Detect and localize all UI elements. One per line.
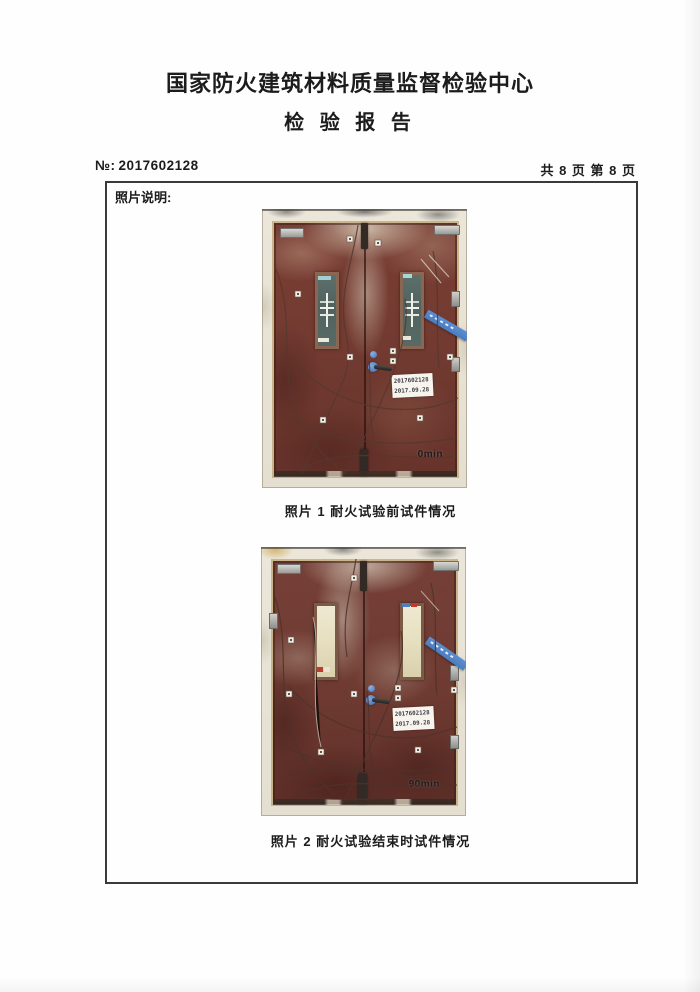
report-number: №:2017602128 — [95, 158, 199, 173]
section-label: 照片说明: — [115, 187, 171, 206]
photo-1-caption: 照片 1 耐火试验前试件情况 — [105, 501, 636, 520]
page-info: 共 8 页 第 8 页 — [540, 160, 636, 179]
report-number-label: №: — [95, 158, 116, 173]
photo-before-test: 2017602128 2017.09.28 0min — [262, 209, 467, 488]
organization-title: 国家防火建筑材料质量监督检验中心 — [0, 66, 700, 98]
report-page: 国家防火建筑材料质量监督检验中心 检 验 报 告 №:2017602128 共 … — [0, 0, 700, 992]
thermocouple-wires-and-markers — [261, 547, 466, 816]
photo-2-caption: 照片 2 耐火试验结束时试件情况 — [105, 831, 636, 850]
thermocouple-wires-and-markers — [262, 209, 467, 488]
photo-after-test: 2017602128 2017.09.28 90min — [261, 547, 466, 816]
report-number-value: 2017602128 — [119, 158, 199, 173]
report-title: 检 验 报 告 — [0, 106, 700, 135]
